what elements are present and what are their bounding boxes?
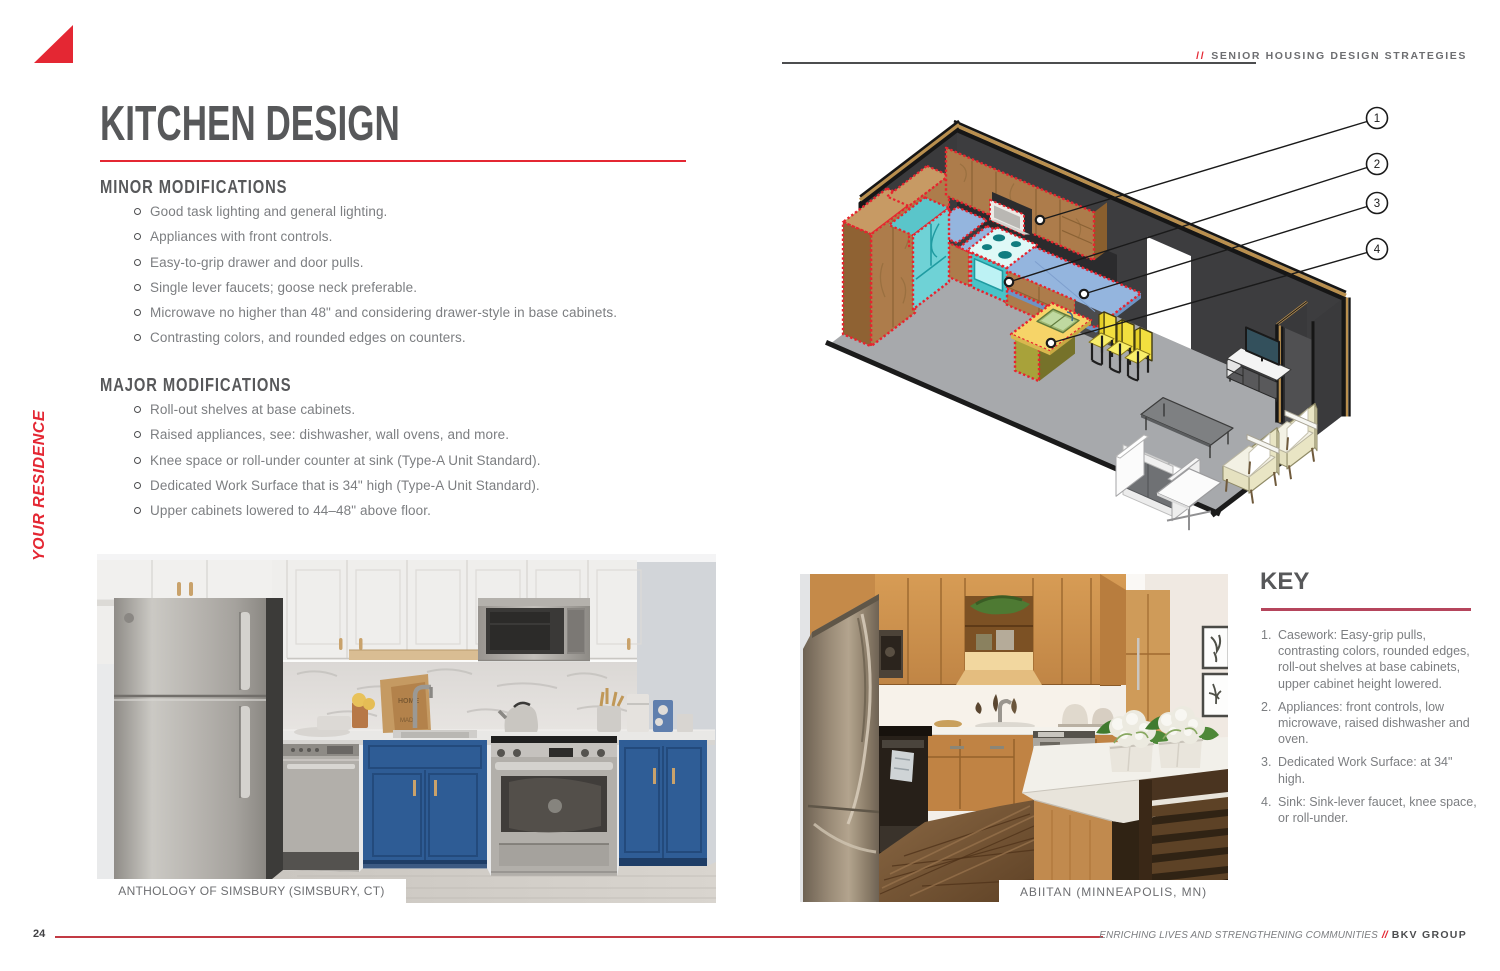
svg-text:3: 3 <box>1374 198 1380 210</box>
svg-text:2: 2 <box>1374 159 1380 171</box>
svg-text:1: 1 <box>1374 113 1380 125</box>
svg-text:4: 4 <box>1374 244 1381 256</box>
